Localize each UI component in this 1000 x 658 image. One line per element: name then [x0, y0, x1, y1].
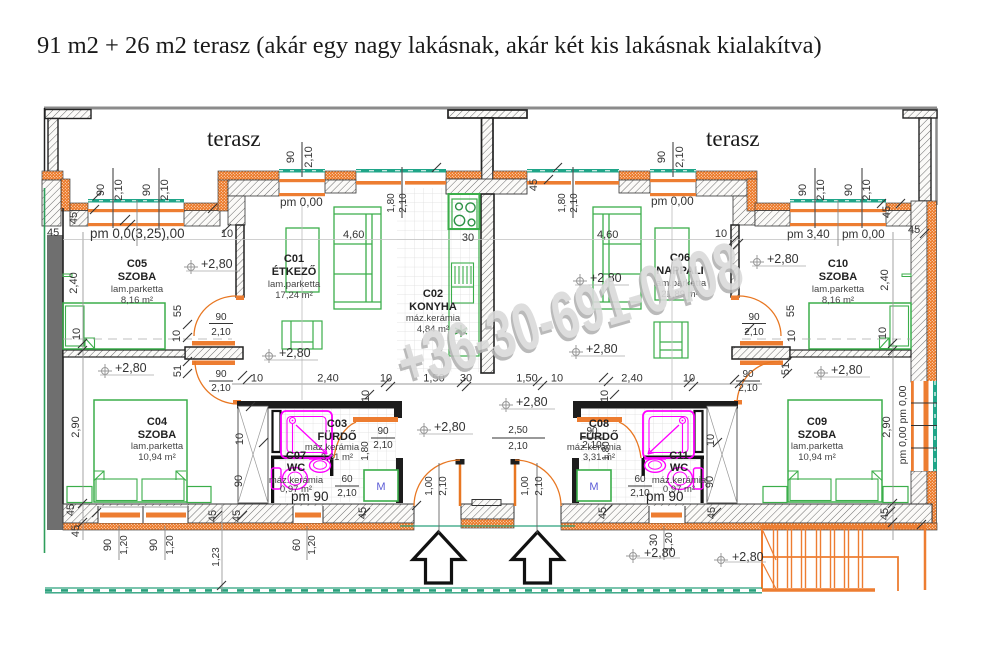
svg-text:C03: C03	[327, 418, 347, 430]
svg-text:+2,80: +2,80	[279, 346, 311, 360]
svg-text:60: 60	[291, 539, 303, 551]
svg-text:2,50: 2,50	[508, 425, 528, 436]
svg-text:30: 30	[462, 232, 474, 244]
svg-text:2,10: 2,10	[438, 476, 449, 496]
svg-text:2,10: 2,10	[744, 327, 764, 338]
svg-text:90: 90	[215, 312, 227, 323]
svg-text:3,31 m²: 3,31 m²	[321, 452, 353, 463]
svg-text:pm 0,0(3,25),00: pm 0,0(3,25),00	[90, 226, 185, 241]
svg-text:C10: C10	[828, 258, 848, 270]
svg-text:lam.parketta: lam.parketta	[812, 284, 865, 295]
svg-text:2,10: 2,10	[738, 383, 758, 394]
svg-text:4,60: 4,60	[343, 229, 364, 241]
svg-text:lam.parketta: lam.parketta	[131, 441, 184, 452]
svg-text:45: 45	[231, 510, 243, 522]
svg-text:45: 45	[70, 525, 82, 537]
svg-text:1,00: 1,00	[424, 476, 435, 496]
svg-text:60: 60	[341, 474, 353, 485]
svg-text:pm 90: pm 90	[291, 489, 329, 504]
svg-text:pm 0,00 pm 0,00: pm 0,00 pm 0,00	[897, 385, 909, 464]
svg-text:WC: WC	[670, 462, 688, 474]
svg-text:55: 55	[172, 305, 184, 317]
svg-text:10: 10	[551, 373, 563, 385]
svg-text:2,10: 2,10	[398, 193, 409, 213]
svg-text:90: 90	[377, 426, 389, 437]
svg-text:17,24 m²: 17,24 m²	[275, 290, 313, 301]
svg-text:1,80: 1,80	[386, 193, 397, 213]
svg-text:45: 45	[881, 206, 893, 218]
svg-text:10: 10	[221, 228, 233, 240]
svg-text:1,00: 1,00	[520, 476, 531, 496]
svg-text:90: 90	[233, 475, 245, 487]
svg-text:C01: C01	[284, 253, 304, 265]
svg-text:1,20: 1,20	[165, 535, 176, 555]
svg-text:1,80: 1,80	[557, 193, 568, 213]
svg-text:1,20: 1,20	[307, 535, 318, 555]
svg-text:90: 90	[704, 476, 716, 488]
svg-text:10,94 m²: 10,94 m²	[798, 452, 836, 463]
svg-text:+2,80: +2,80	[434, 420, 466, 434]
svg-text:90: 90	[586, 426, 598, 437]
svg-text:91 m2 + 26 m2 terasz (akár egy: 91 m2 + 26 m2 terasz (akár egy nagy laká…	[37, 32, 822, 59]
svg-text:SZOBA: SZOBA	[138, 429, 177, 441]
svg-text:2,10: 2,10	[211, 327, 231, 338]
svg-text:10: 10	[599, 390, 611, 402]
svg-text:1,50: 1,50	[516, 373, 537, 385]
svg-text:60: 60	[634, 474, 646, 485]
svg-text:45: 45	[47, 227, 59, 239]
svg-text:terasz: terasz	[706, 126, 760, 151]
svg-text:2,40: 2,40	[879, 269, 891, 290]
svg-text:45: 45	[597, 507, 609, 519]
svg-text:+2,80: +2,80	[115, 361, 147, 375]
svg-text:2,90: 2,90	[881, 416, 893, 437]
svg-text:10: 10	[251, 373, 263, 385]
svg-text:2,10: 2,10	[159, 179, 171, 200]
svg-text:90: 90	[748, 312, 760, 323]
svg-text:55: 55	[785, 305, 797, 317]
svg-text:45: 45	[528, 179, 540, 191]
svg-text:90: 90	[215, 369, 227, 380]
svg-text:lam.parketta: lam.parketta	[791, 441, 844, 452]
svg-text:45: 45	[706, 507, 718, 519]
svg-text:90: 90	[843, 184, 855, 196]
svg-text:10: 10	[683, 373, 695, 385]
svg-text:10: 10	[360, 390, 372, 402]
svg-text:45: 45	[879, 508, 891, 520]
svg-text:90: 90	[742, 369, 754, 380]
svg-text:90: 90	[656, 151, 668, 163]
svg-text:ÉTKEZŐ: ÉTKEZŐ	[272, 265, 317, 278]
svg-text:90: 90	[141, 184, 153, 196]
svg-text:+2,80: +2,80	[201, 257, 233, 271]
svg-text:8,16 m²: 8,16 m²	[822, 295, 854, 306]
svg-text:pm 0,00: pm 0,00	[280, 195, 323, 209]
svg-text:10: 10	[786, 330, 798, 342]
svg-text:45: 45	[68, 212, 80, 224]
svg-text:10: 10	[171, 330, 183, 342]
svg-text:45: 45	[65, 504, 77, 516]
svg-text:lam.parketta: lam.parketta	[111, 284, 164, 295]
svg-text:2,10: 2,10	[337, 488, 357, 499]
svg-text:lam.parketta: lam.parketta	[268, 279, 321, 290]
svg-text:pm 0,00: pm 0,00	[842, 227, 885, 241]
svg-text:2,10: 2,10	[508, 441, 528, 452]
svg-text:M: M	[376, 481, 385, 493]
svg-text:C05: C05	[127, 258, 147, 270]
svg-text:10: 10	[380, 373, 392, 385]
svg-text:45: 45	[908, 224, 920, 236]
svg-text:C07: C07	[286, 450, 306, 462]
svg-text:2,40: 2,40	[68, 272, 80, 293]
svg-text:2,10: 2,10	[582, 440, 602, 451]
svg-text:90: 90	[95, 184, 107, 196]
svg-text:+2,80: +2,80	[831, 363, 863, 377]
svg-text:10: 10	[877, 327, 889, 339]
svg-text:2,10: 2,10	[303, 146, 315, 167]
svg-text:1,80: 1,80	[601, 441, 612, 461]
svg-text:2,10: 2,10	[534, 476, 545, 496]
svg-text:1,20: 1,20	[119, 535, 130, 555]
svg-text:2,40: 2,40	[621, 373, 642, 385]
svg-text:terasz: terasz	[207, 126, 261, 151]
svg-text:2,40: 2,40	[317, 373, 338, 385]
svg-text:C02: C02	[423, 288, 443, 300]
svg-text:2,10: 2,10	[211, 383, 231, 394]
svg-text:pm 90: pm 90	[646, 489, 684, 504]
svg-text:pm 0,00: pm 0,00	[651, 194, 694, 208]
svg-text:pm 3,40: pm 3,40	[787, 227, 830, 241]
svg-text:10: 10	[705, 434, 717, 446]
svg-text:51: 51	[172, 365, 184, 377]
svg-text:2,10: 2,10	[113, 179, 125, 200]
svg-text:90: 90	[797, 184, 809, 196]
svg-text:45: 45	[357, 507, 369, 519]
svg-text:+2,80: +2,80	[516, 395, 548, 409]
svg-text:30: 30	[648, 534, 660, 546]
svg-text:C04: C04	[147, 416, 168, 428]
svg-text:2,10: 2,10	[569, 193, 580, 213]
svg-text:10: 10	[234, 433, 246, 445]
svg-text:90: 90	[102, 539, 114, 551]
svg-text:1,20: 1,20	[664, 532, 675, 552]
svg-text:SZOBA: SZOBA	[819, 271, 858, 283]
svg-text:2,10: 2,10	[674, 146, 686, 167]
svg-text:2,90: 2,90	[70, 416, 82, 437]
svg-text:90: 90	[148, 539, 160, 551]
svg-text:90: 90	[285, 151, 297, 163]
svg-text:4,60: 4,60	[597, 229, 618, 241]
svg-text:M: M	[589, 481, 598, 493]
svg-text:51: 51	[780, 363, 792, 375]
svg-text:1,23: 1,23	[211, 547, 222, 567]
svg-text:SZOBA: SZOBA	[798, 429, 837, 441]
svg-text:10: 10	[71, 328, 83, 340]
svg-text:C09: C09	[807, 416, 827, 428]
svg-text:2,10: 2,10	[861, 179, 873, 200]
svg-text:2,10: 2,10	[373, 440, 393, 451]
svg-text:8,16 m²: 8,16 m²	[121, 295, 153, 306]
svg-text:C11: C11	[669, 450, 689, 462]
svg-text:1,80: 1,80	[360, 441, 371, 461]
svg-text:10,94 m²: 10,94 m²	[138, 452, 176, 463]
svg-text:WC: WC	[287, 462, 305, 474]
svg-text:2,10: 2,10	[815, 179, 827, 200]
svg-text:+2,80: +2,80	[767, 252, 799, 266]
svg-text:45: 45	[207, 510, 219, 522]
svg-text:SZOBA: SZOBA	[118, 271, 157, 283]
